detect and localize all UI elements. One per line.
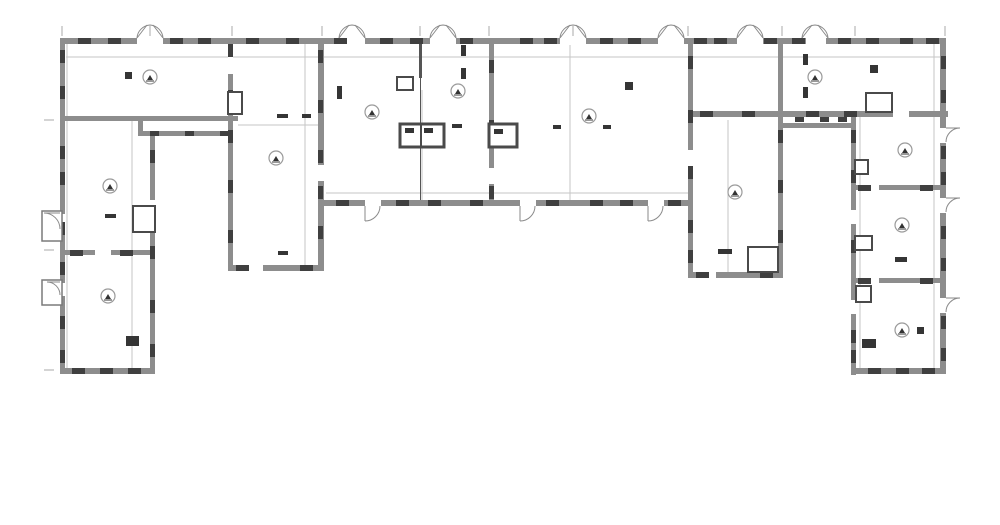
window-pier	[941, 348, 946, 361]
window-pier	[920, 278, 933, 284]
window-pier	[688, 110, 693, 123]
window-pier	[590, 200, 603, 206]
window-pier	[70, 250, 83, 256]
window-pier	[806, 111, 819, 117]
window-pier	[620, 200, 633, 206]
window-pier	[60, 350, 65, 363]
window-pier	[851, 350, 856, 363]
wall-opening	[658, 37, 684, 45]
fixture-mark	[405, 128, 414, 133]
window-pier	[764, 38, 777, 44]
window-pier	[228, 130, 233, 143]
window-pier	[868, 368, 881, 374]
window-pier	[844, 111, 857, 117]
fixture-mark	[870, 65, 878, 73]
window-pier	[778, 130, 783, 143]
fixture-mark	[424, 128, 433, 133]
window-pier	[858, 278, 871, 284]
porch-outline	[42, 280, 62, 305]
window-pier	[60, 146, 65, 159]
wall-opening	[228, 56, 233, 74]
wall-opening	[137, 37, 163, 45]
window-pier	[318, 226, 323, 239]
fixture-mark	[461, 45, 466, 56]
window-pier	[700, 111, 713, 117]
wall-opening	[520, 199, 536, 207]
window-pier	[150, 246, 155, 259]
wall-opening	[940, 198, 946, 213]
window-pier	[60, 316, 65, 329]
window-pier	[941, 226, 946, 239]
screenshot-root	[0, 0, 1000, 525]
floor-plan-drawing	[0, 0, 1000, 525]
window-pier	[150, 300, 155, 313]
window-pier	[410, 38, 423, 44]
window-pier	[100, 368, 113, 374]
window-pier	[170, 38, 183, 44]
partition-wall	[420, 147, 421, 200]
window-pier	[198, 38, 211, 44]
shaft-box	[489, 124, 517, 147]
wall-opening	[365, 199, 381, 207]
window-pier	[838, 38, 851, 44]
fixture-mark	[126, 336, 139, 346]
window-pier	[628, 38, 641, 44]
wall-opening	[430, 37, 456, 45]
window-pier	[460, 38, 473, 44]
fixture-mark	[895, 257, 907, 262]
window-pier	[544, 38, 557, 44]
wall-segment	[782, 123, 852, 128]
fixture-mark	[105, 214, 116, 218]
window-pier	[941, 90, 946, 103]
window-pier	[318, 186, 323, 199]
window-pier	[286, 38, 299, 44]
corridor-pier	[150, 131, 159, 136]
fixture-mark	[302, 114, 311, 118]
window-pier	[851, 330, 856, 343]
closet-outline	[866, 93, 892, 112]
window-pier	[920, 185, 933, 191]
fixture-mark	[278, 251, 288, 255]
window-pier	[688, 56, 693, 69]
wall-segment	[60, 116, 238, 121]
window-pier	[546, 200, 559, 206]
closet-outline	[856, 286, 871, 302]
partition-wall	[420, 78, 421, 125]
window-pier	[941, 258, 946, 271]
window-pier	[336, 200, 349, 206]
window-pier	[696, 272, 709, 278]
closet-outline	[397, 77, 413, 90]
fixture-mark	[625, 82, 633, 90]
closet-outline	[855, 160, 868, 174]
window-pier	[380, 38, 393, 44]
window-pier	[246, 38, 259, 44]
wall-opening	[737, 37, 763, 45]
wall-opening	[247, 265, 263, 271]
window-pier	[236, 265, 249, 271]
window-pier	[926, 38, 939, 44]
window-pier	[470, 200, 483, 206]
window-pier	[922, 368, 935, 374]
closet-outline	[133, 206, 155, 232]
window-pier	[941, 172, 946, 185]
window-pier	[694, 38, 707, 44]
fixture-mark	[452, 124, 462, 128]
window-pier	[228, 44, 233, 57]
fixture-mark	[917, 327, 924, 334]
window-pier	[688, 220, 693, 233]
closet-outline	[228, 92, 242, 114]
window-pier	[128, 368, 141, 374]
window-pier	[792, 38, 805, 44]
fixture-mark	[603, 125, 611, 129]
window-pier	[318, 150, 323, 163]
window-pier	[120, 250, 133, 256]
window-pier	[489, 60, 494, 73]
window-pier	[742, 111, 755, 117]
window-pier	[300, 265, 313, 271]
window-pier	[688, 250, 693, 263]
window-pier	[778, 230, 783, 243]
fixture-mark	[337, 86, 342, 99]
window-pier	[72, 368, 85, 374]
window-pier	[108, 38, 121, 44]
wall-segment	[138, 116, 143, 136]
window-pier	[60, 262, 65, 275]
window-pier	[896, 368, 909, 374]
wall-opening	[688, 150, 693, 166]
fixture-mark	[461, 68, 466, 79]
wall-opening	[95, 250, 111, 255]
window-pier	[851, 130, 856, 143]
wall-opening	[940, 298, 946, 313]
wall-opening	[893, 110, 909, 117]
fixture-mark	[494, 129, 503, 134]
wall-opening	[806, 37, 826, 45]
window-pier	[600, 38, 613, 44]
window-pier	[941, 316, 946, 329]
corridor-pier	[838, 117, 847, 122]
window-pier	[60, 50, 65, 63]
partition-wall	[419, 44, 422, 78]
corridor-pier	[795, 117, 804, 122]
corridor-pier	[820, 117, 829, 122]
fixture-mark	[862, 339, 876, 348]
wall-segment	[318, 206, 323, 224]
window-pier	[858, 185, 871, 191]
window-pier	[150, 150, 155, 163]
window-pier	[78, 38, 91, 44]
window-pier	[668, 200, 681, 206]
wall-opening	[940, 128, 946, 143]
closet-outline	[748, 247, 778, 272]
fixture-mark	[803, 87, 808, 98]
window-pier	[900, 38, 913, 44]
wall-opening	[648, 199, 664, 207]
corridor-pier	[185, 131, 194, 136]
window-pier	[228, 230, 233, 243]
window-pier	[428, 200, 441, 206]
window-pier	[688, 166, 693, 179]
window-pier	[60, 172, 65, 185]
fixture-mark	[803, 54, 808, 65]
window-pier	[318, 50, 323, 63]
window-pier	[520, 38, 533, 44]
wall-opening	[318, 165, 324, 181]
fixture-mark	[125, 72, 132, 79]
window-pier	[714, 38, 727, 44]
wall-opening	[560, 37, 586, 45]
window-pier	[334, 38, 347, 44]
fixture-mark	[277, 114, 288, 118]
fixture-mark	[718, 249, 732, 254]
window-pier	[60, 86, 65, 99]
window-pier	[866, 38, 879, 44]
wall-opening	[851, 210, 856, 224]
window-pier	[778, 180, 783, 193]
closet-outline	[855, 236, 872, 250]
window-pier	[489, 186, 494, 199]
window-pier	[150, 344, 155, 357]
window-pier	[941, 146, 946, 159]
fixture-mark	[553, 125, 561, 129]
window-pier	[396, 200, 409, 206]
window-pier	[228, 180, 233, 193]
window-pier	[318, 100, 323, 113]
window-pier	[941, 56, 946, 69]
wall-opening	[489, 168, 494, 184]
corridor-pier	[220, 131, 229, 136]
